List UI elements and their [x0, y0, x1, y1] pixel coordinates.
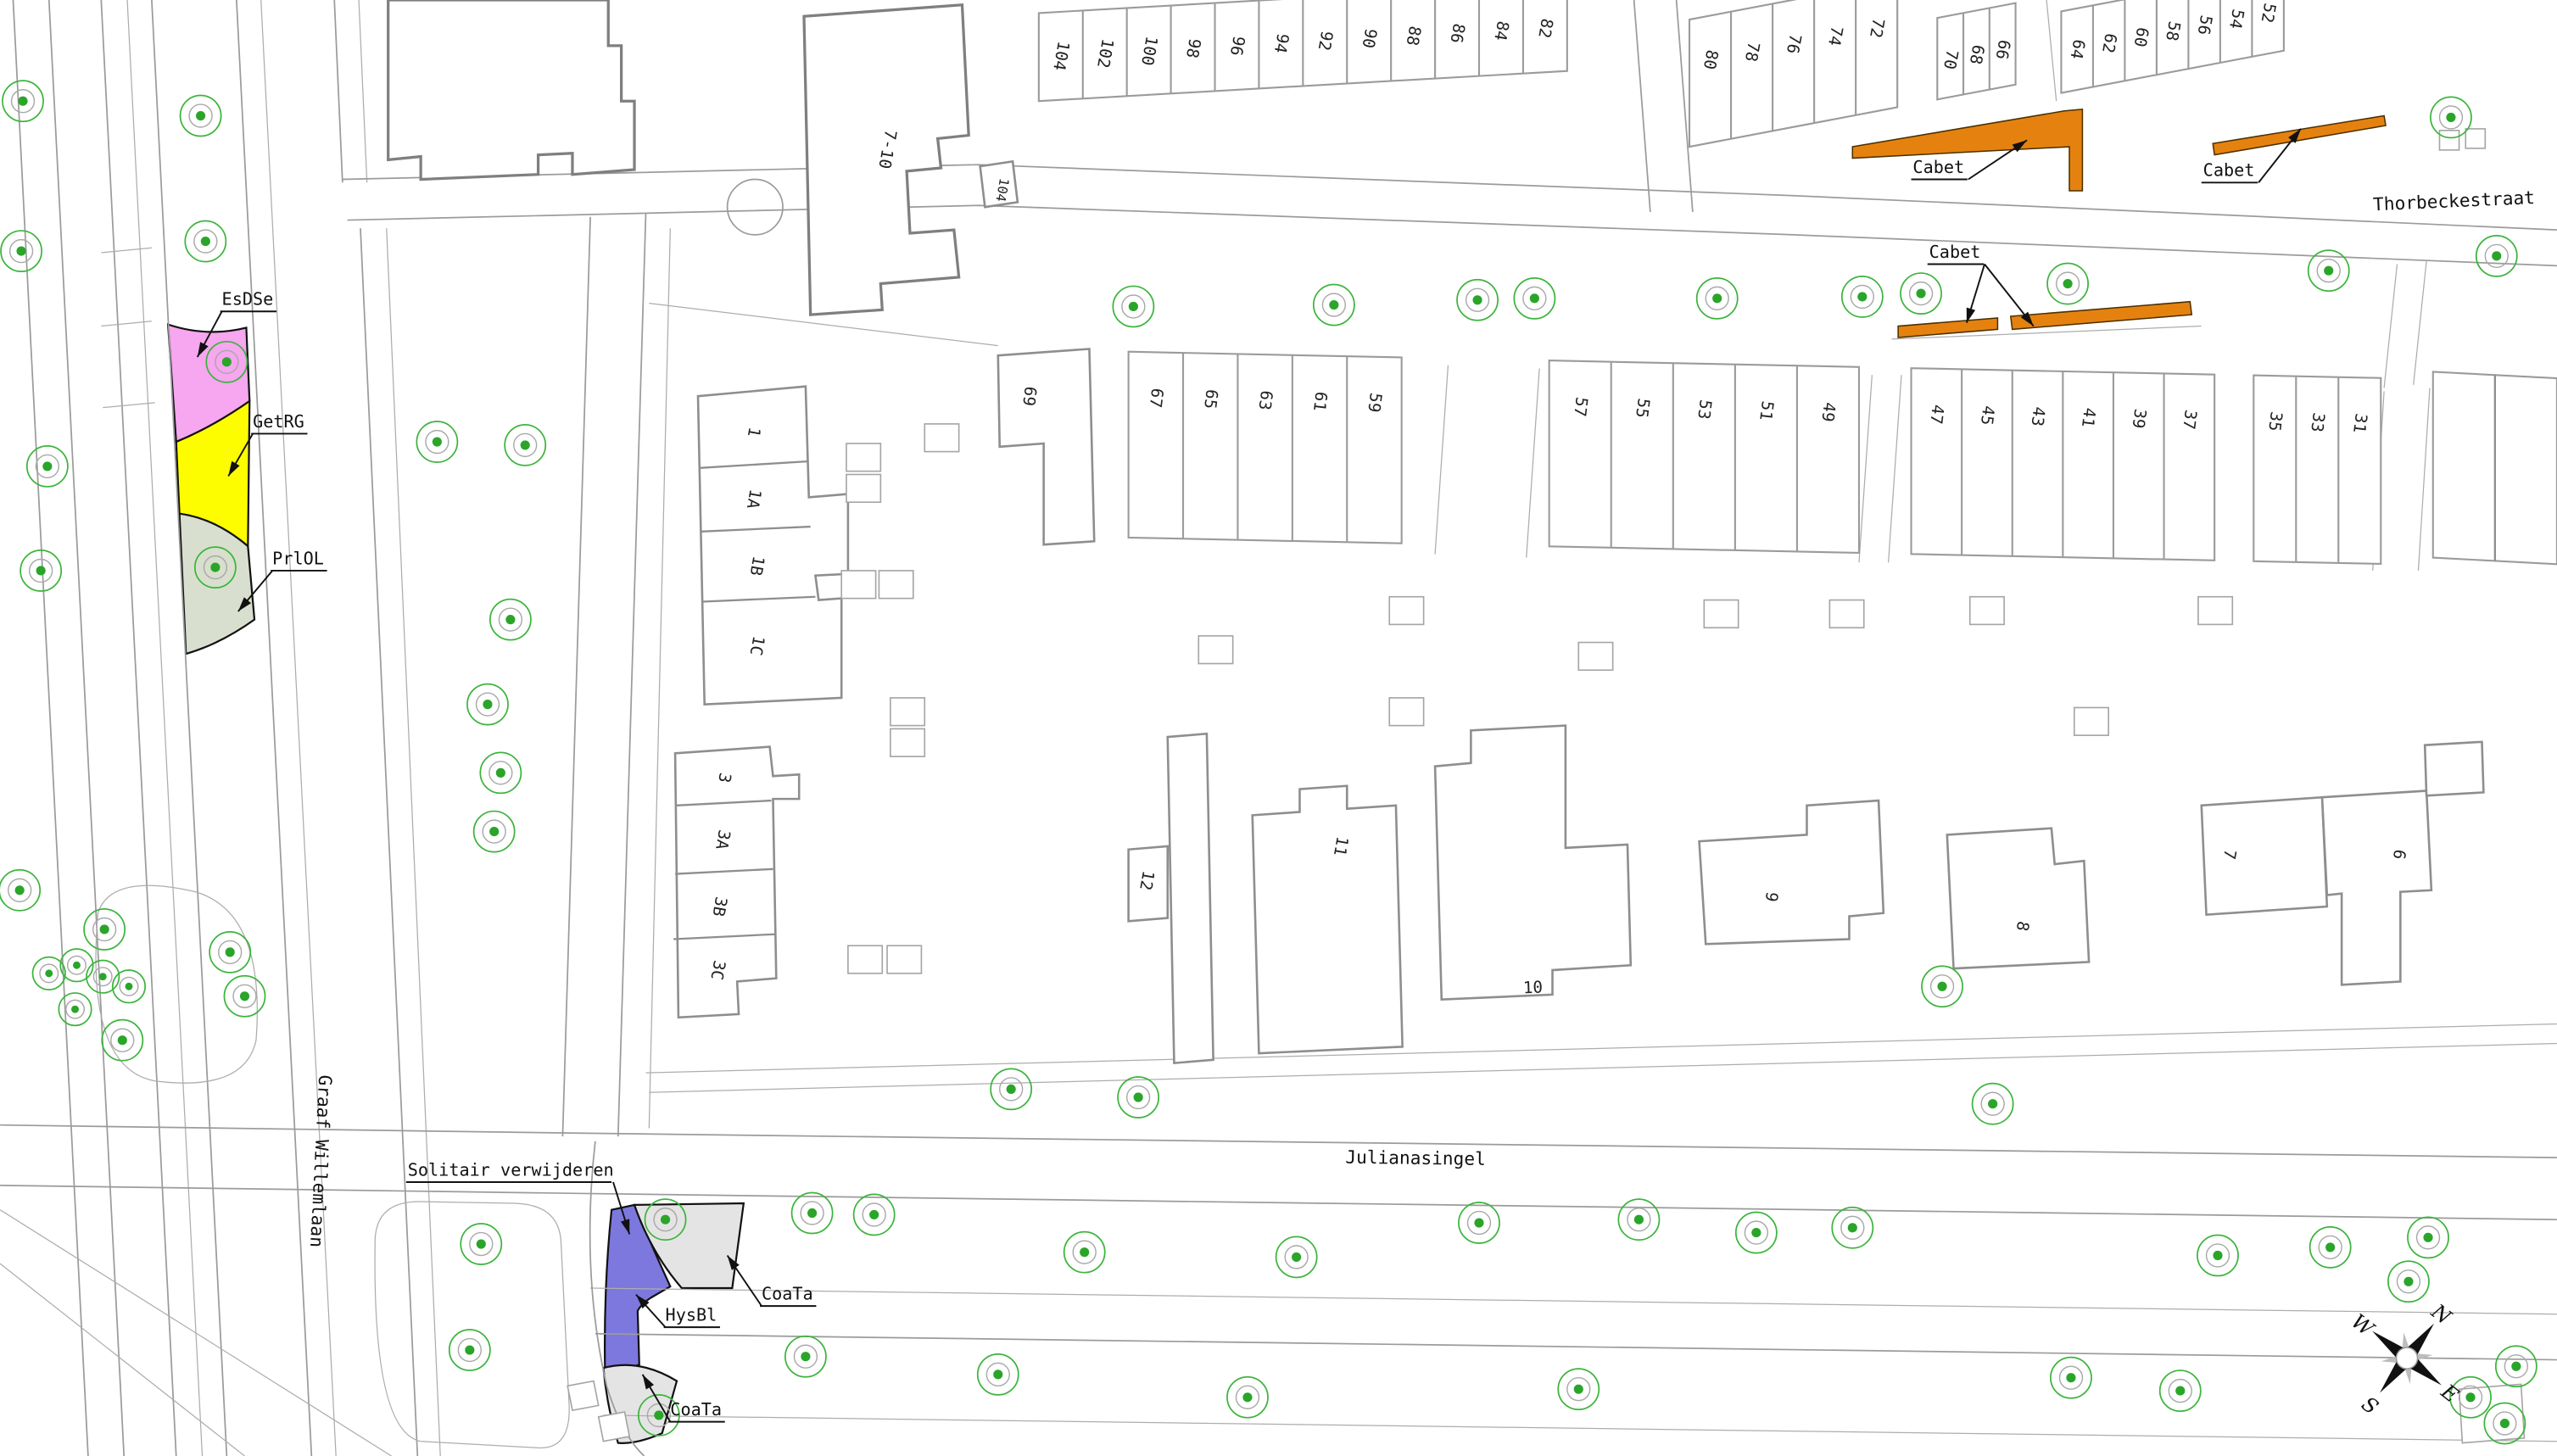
tree-trunk-dot [1937, 982, 1946, 991]
road-line [1859, 375, 1872, 562]
tree-symbol [2197, 1235, 2238, 1275]
tree-symbol [1459, 1202, 1499, 1243]
tree-symbol [474, 812, 515, 852]
road-line [103, 403, 155, 408]
tree-trunk-dot [1574, 1385, 1583, 1394]
parcel-strip [1129, 352, 1402, 544]
tree-symbol [1314, 285, 1354, 326]
building-10-outline [1435, 726, 1631, 1000]
shed-outline [890, 728, 924, 756]
building-label-10: 10 [1522, 978, 1543, 998]
house-number: 41 [2078, 407, 2100, 429]
shed-outline [1578, 643, 1612, 671]
compass-letter-n: N [2426, 1299, 2456, 1330]
house-number: 37 [2179, 409, 2201, 431]
building-6-outline [2322, 791, 2431, 985]
tree-symbol [1901, 273, 1941, 314]
house-number: 67 [1146, 387, 1168, 409]
tree-symbol [185, 221, 226, 262]
area-cabet-strip-ne [2213, 116, 2386, 155]
tree-symbol [490, 600, 531, 640]
building-12-outline [1168, 734, 1214, 1063]
shed-outline [1704, 600, 1738, 628]
tree-symbol [467, 684, 508, 725]
street-name-thorbeckestraat: Thorbeckestraat [2373, 187, 2536, 215]
shed-outline [1970, 597, 2004, 625]
parcel-strip [1549, 360, 1859, 553]
street-name-graaf-willemlaan: Graaf Willemlaan [306, 1074, 336, 1248]
house-number: 45 [1977, 404, 1999, 427]
tree-trunk-dot [2465, 1392, 2475, 1402]
house-number: 52 [2258, 2, 2281, 25]
tree-trunk-dot [993, 1370, 1002, 1379]
tree-trunk-dot [869, 1210, 879, 1219]
house-number-69: 69 [1019, 385, 1041, 407]
tree-symbol [1457, 280, 1498, 321]
house-number: 58 [2162, 20, 2185, 42]
tree-trunk-dot [1857, 292, 1867, 301]
tree-symbol [2476, 236, 2517, 276]
house-number: 68 [1966, 43, 1989, 66]
tree-trunk-dot [2403, 1277, 2413, 1286]
tree-symbol [792, 1192, 833, 1233]
tree-trunk-dot [521, 440, 530, 449]
tree-trunk-dot [1329, 300, 1338, 310]
tree-symbol [1276, 1236, 1317, 1277]
house-number: 53 [1694, 399, 1716, 421]
road-line [595, 1334, 2557, 1360]
tree-symbol [978, 1354, 1019, 1395]
tree-trunk-dot [210, 563, 220, 572]
tree-trunk-dot [1292, 1252, 1301, 1262]
tree-trunk-dot [71, 1006, 79, 1013]
tree-symbol [3, 81, 43, 121]
building-outline [388, 0, 634, 180]
house-number: 55 [1632, 397, 1654, 419]
shed-outline [2465, 129, 2485, 148]
road-line [645, 1024, 2556, 1073]
tree-trunk-dot [36, 566, 46, 575]
house-number: 74 [1824, 25, 1847, 47]
road-line [1634, 0, 1650, 212]
building-label-1c: 1C [746, 634, 769, 657]
tree-trunk-dot [126, 983, 133, 990]
road-line [375, 1202, 569, 1448]
house-number: 62 [2098, 32, 2121, 55]
house-number: 96 [1226, 35, 1249, 58]
parcel-strip [2061, 0, 2283, 93]
building-8-outline [1947, 828, 2089, 968]
tree-symbol [2051, 1358, 2091, 1398]
tree-symbol [2388, 1261, 2429, 1302]
tree-trunk-dot [2500, 1419, 2510, 1428]
tree-trunk-dot [505, 615, 515, 624]
tree-trunk-dot [2492, 251, 2501, 260]
house-number: 65 [1200, 388, 1222, 410]
tree-symbol [84, 909, 125, 950]
tree-symbol [1922, 966, 1962, 1007]
house-number: 63 [1255, 389, 1277, 411]
tree-trunk-dot [1530, 293, 1539, 303]
compass-letter-e: E [2436, 1379, 2463, 1408]
tree-symbol [2496, 1346, 2537, 1386]
tree-symbol [1736, 1213, 1777, 1253]
tree-symbol [1973, 1084, 2013, 1124]
house-number: 54 [2225, 8, 2248, 31]
road-line [334, 0, 343, 182]
tree-trunk-dot [496, 768, 505, 778]
tree-symbol [449, 1330, 490, 1370]
tree-symbol [181, 95, 221, 136]
tree-trunk-dot [1242, 1392, 1252, 1402]
area-label: PrlOL [272, 548, 324, 568]
building-label-1a: 1A [743, 488, 766, 510]
tree-trunk-dot [118, 1035, 127, 1045]
tree-symbol [1118, 1077, 1158, 1118]
road-line [1527, 369, 1539, 558]
area-cabet-strip-b [2011, 302, 2191, 330]
building-block3-outline [675, 747, 799, 1018]
annotation: CoaTa [728, 1256, 817, 1307]
road-line [0, 1125, 2557, 1158]
tree-trunk-dot [240, 991, 249, 1001]
shed-outline [2439, 131, 2459, 150]
tree-trunk-dot [196, 111, 205, 120]
building-label-3a: 3A [712, 828, 734, 851]
road-line [2418, 388, 2429, 571]
road-line [603, 1415, 2556, 1442]
area-cabet-strip-a [1898, 318, 1997, 338]
house-number: 61 [1309, 391, 1332, 413]
house-number: 49 [1817, 401, 1840, 423]
tree-symbol [480, 752, 521, 793]
tree-symbol [505, 425, 545, 466]
tree-trunk-dot [2213, 1251, 2222, 1260]
house-number: 59 [1364, 392, 1386, 414]
compass-letter-s: S [2357, 1392, 2382, 1419]
tree-trunk-dot [2324, 266, 2333, 276]
road-line [1435, 365, 1448, 555]
road-line [590, 1288, 2557, 1314]
house-number: 47 [1926, 404, 1948, 426]
house-parcels-layer: 1041021009896949290888684828078767472706… [1039, 0, 2381, 564]
road-network-layer [0, 0, 2557, 1456]
road-line [387, 228, 440, 1456]
tree-symbol [991, 1068, 1031, 1109]
tree-trunk-dot [2175, 1386, 2185, 1396]
building-label-3c: 3C [706, 959, 729, 982]
trees-layer [0, 81, 2537, 1443]
house-number: 60 [2130, 25, 2153, 48]
shed-outline [879, 571, 913, 599]
house-number: 72 [1866, 17, 1889, 40]
shed-outline [846, 443, 880, 471]
parcel-strip [1689, 0, 1897, 147]
tree-symbol [1832, 1208, 1873, 1248]
tree-symbol [785, 1336, 826, 1377]
house-number: 86 [1446, 22, 1469, 45]
tree-symbol [1227, 1377, 1268, 1418]
tree-trunk-dot [99, 973, 107, 980]
tree-trunk-dot [654, 1410, 663, 1420]
house-number: 57 [1570, 396, 1592, 418]
house-number: 51 [1756, 400, 1778, 422]
road-line [2046, 0, 2057, 101]
tree-trunk-dot [2063, 279, 2073, 288]
shed-outline [2198, 597, 2232, 625]
tree-trunk-dot [100, 924, 109, 934]
road-line [13, 0, 87, 1456]
road-line [562, 217, 590, 1136]
tree-symbol [1697, 278, 1738, 319]
tree-symbol [1, 231, 42, 271]
tree-trunk-dot [2423, 1233, 2432, 1242]
tree-trunk-dot [489, 827, 499, 836]
tree-symbol [1618, 1199, 1659, 1240]
tree-trunk-dot [1916, 289, 1925, 298]
tree-symbol [854, 1194, 895, 1235]
building-label-11: 11 [1330, 835, 1353, 858]
tree-trunk-dot [2511, 1362, 2521, 1371]
tree-symbol [209, 932, 250, 973]
annotation: Cabet [1928, 242, 2034, 326]
building-label-12: 12 [1136, 869, 1158, 892]
house-number: 78 [1741, 41, 1764, 64]
area-label: CoaTa [670, 1399, 722, 1420]
tree-trunk-dot [226, 947, 235, 957]
tree-symbol [1064, 1232, 1105, 1273]
shed-outline [1389, 698, 1423, 726]
tree-trunk-dot [201, 237, 210, 246]
tree-trunk-dot [1712, 293, 1722, 303]
tree-trunk-dot [1988, 1099, 1997, 1108]
shed-outline [846, 475, 880, 503]
house-number: 35 [2264, 410, 2286, 432]
house-number: 66 [1992, 38, 2015, 61]
tree-symbol [2408, 1217, 2448, 1258]
tree-trunk-dot [807, 1208, 817, 1218]
tree-symbol [224, 976, 265, 1017]
tree-trunk-dot [73, 962, 81, 969]
tree-symbol [416, 421, 457, 462]
tree-symbol [87, 960, 119, 992]
house-number: 84 [1490, 20, 1513, 42]
tree-trunk-dot [433, 437, 442, 446]
house-number: 43 [2027, 405, 2049, 427]
road-line [101, 248, 152, 253]
tree-symbol [0, 870, 40, 911]
tree-trunk-dot [2325, 1242, 2335, 1252]
tree-symbol [59, 993, 91, 1025]
tree-trunk-dot [18, 97, 27, 106]
tree-trunk-dot [16, 247, 25, 256]
house-number: 56 [2194, 14, 2217, 36]
tree-trunk-dot [1472, 295, 1482, 304]
tree-symbol [33, 957, 65, 990]
house-number: 33 [2307, 411, 2329, 433]
building-outline [2425, 742, 2483, 795]
tree-trunk-dot [1129, 302, 1138, 311]
road-line [152, 0, 226, 1456]
house-number: 88 [1403, 25, 1426, 47]
shed-outline [890, 698, 924, 726]
tree-trunk-dot [1634, 1215, 1644, 1224]
tree-symbol [1113, 286, 1153, 326]
house-number: 64 [2067, 38, 2090, 61]
tree-trunk-dot [42, 461, 52, 471]
tree-trunk-dot [45, 969, 53, 977]
road-line [359, 0, 367, 182]
compass-letter-w: W [2347, 1309, 2380, 1342]
area-label: CoaTa [762, 1283, 813, 1303]
area-label: Cabet [1912, 157, 1964, 177]
tree-trunk-dot [1134, 1092, 1143, 1102]
text-layer: Thorbeckestraat Julianasingel Graaf Will… [306, 128, 2535, 1247]
shed-outline [1389, 597, 1423, 625]
tree-trunk-dot [465, 1345, 474, 1354]
tree-symbol [2160, 1370, 2201, 1411]
street-name-julianasingel: Julianasingel [1345, 1146, 1486, 1169]
shed-outline [1198, 636, 1232, 664]
area-label: GetRG [253, 411, 304, 432]
shed-outline [2074, 707, 2108, 735]
tree-symbol [1842, 276, 1883, 317]
house-number: 76 [1783, 32, 1806, 55]
road-line [1889, 375, 1901, 562]
parcel-strip [2253, 376, 2381, 564]
house-number: 31 [2349, 412, 2371, 434]
building-label-3b: 3B [708, 895, 731, 918]
building-11-outline [1253, 786, 1403, 1053]
area-label: HysBl [666, 1304, 717, 1325]
building-label-1b: 1B [746, 555, 769, 577]
building-9-outline [1700, 801, 1884, 944]
tree-trunk-dot [661, 1215, 670, 1224]
building-block1-outline [698, 387, 848, 705]
house-number: 82 [1534, 17, 1557, 40]
house-number: 39 [2129, 408, 2151, 430]
house-number: 94 [1270, 32, 1293, 55]
road-line [237, 0, 311, 1456]
tree-trunk-dot [1474, 1218, 1483, 1227]
road-line [649, 1044, 2557, 1093]
area-label: EsDSe [222, 289, 274, 310]
house-number: 70 [1940, 48, 1962, 71]
shed-outline [848, 946, 882, 973]
house-number: 98 [1182, 37, 1205, 60]
tree-trunk-dot [2446, 113, 2455, 122]
road-line [2384, 264, 2397, 388]
road-line [0, 1210, 391, 1456]
tree-trunk-dot [1007, 1085, 1016, 1094]
shed-outline [841, 571, 875, 599]
tree-trunk-dot [1751, 1228, 1761, 1237]
house-number: 90 [1359, 27, 1382, 50]
tree-trunk-dot [801, 1352, 810, 1361]
road-line [2414, 261, 2426, 385]
tree-trunk-dot [222, 357, 232, 366]
tree-trunk-dot [477, 1239, 486, 1248]
area-label: Cabet [2203, 160, 2255, 181]
tree-trunk-dot [483, 700, 492, 709]
building-69-outline [998, 349, 1094, 544]
tree-symbol [2310, 1227, 2351, 1268]
tree-symbol [20, 550, 61, 591]
roundabout [728, 180, 783, 235]
shed-outline [567, 1381, 599, 1411]
tree-symbol [1558, 1369, 1599, 1409]
house-number: 80 [1700, 48, 1722, 71]
tree-symbol [461, 1224, 501, 1264]
shed-outline [887, 946, 921, 973]
area-label: Solitair verwijderen [408, 1159, 614, 1180]
road-line [649, 228, 670, 1128]
tree-trunk-dot [1080, 1247, 1089, 1257]
tree-symbol [1514, 278, 1555, 319]
road-line [618, 214, 646, 1136]
site-plan-map: 1041021009896949290888684828078767472706… [0, 0, 2557, 1456]
tree-trunk-dot [1848, 1223, 1857, 1232]
tree-trunk-dot [15, 885, 25, 895]
tree-symbol [2047, 264, 2088, 304]
tree-trunk-dot [2066, 1373, 2075, 1382]
shed-outline [599, 1412, 630, 1442]
tree-symbol [113, 970, 145, 1002]
area-label: Cabet [1929, 242, 1981, 262]
annotation: Solitair verwijderen [406, 1159, 629, 1234]
tree-symbol [27, 446, 68, 487]
shed-outline [1829, 600, 1863, 628]
road-line [360, 228, 417, 1456]
house-number: 92 [1315, 30, 1337, 53]
shed-outline [924, 424, 958, 452]
